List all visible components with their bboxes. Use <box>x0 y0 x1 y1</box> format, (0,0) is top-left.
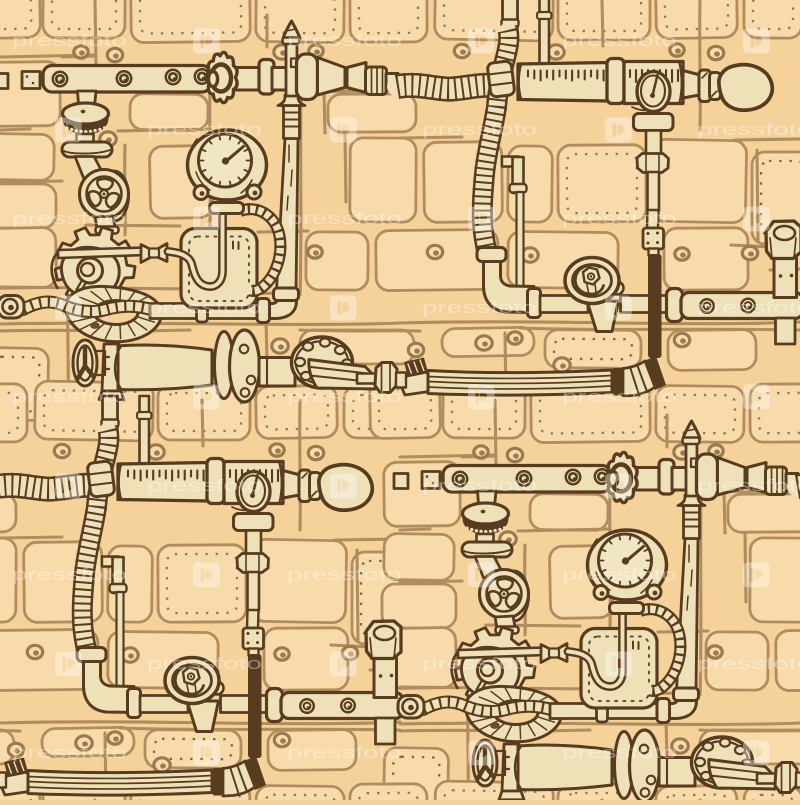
svg-text:pressfoto: pressfoto <box>422 654 537 673</box>
svg-text:pressfoto: pressfoto <box>562 743 677 762</box>
svg-text:pressfoto: pressfoto <box>147 476 262 495</box>
svg-text:pressfoto: pressfoto <box>147 298 262 317</box>
svg-text:pressfoto: pressfoto <box>287 565 402 584</box>
svg-text:pressfoto: pressfoto <box>287 209 402 228</box>
svg-text:pressfoto: pressfoto <box>287 743 402 762</box>
svg-text:pressfoto: pressfoto <box>12 387 127 406</box>
svg-text:pressfoto: pressfoto <box>697 476 800 495</box>
svg-text:pressfoto: pressfoto <box>697 298 800 317</box>
svg-text:pressfoto: pressfoto <box>12 565 127 584</box>
svg-text:pressfoto: pressfoto <box>12 743 127 762</box>
svg-text:pressfoto: pressfoto <box>12 209 127 228</box>
svg-text:pressfoto: pressfoto <box>562 209 677 228</box>
svg-text:pressfoto: pressfoto <box>697 654 800 673</box>
svg-text:pressfoto: pressfoto <box>287 31 402 50</box>
svg-text:pressfoto: pressfoto <box>562 387 677 406</box>
svg-text:pressfoto: pressfoto <box>562 31 677 50</box>
svg-text:pressfoto: pressfoto <box>12 31 127 50</box>
svg-text:pressfoto: pressfoto <box>147 654 262 673</box>
svg-text:pressfoto: pressfoto <box>287 387 402 406</box>
svg-text:pressfoto: pressfoto <box>697 120 800 139</box>
svg-text:pressfoto: pressfoto <box>562 565 677 584</box>
svg-text:pressfoto: pressfoto <box>147 120 262 139</box>
svg-text:pressfoto: pressfoto <box>422 476 537 495</box>
svg-text:pressfoto: pressfoto <box>422 120 537 139</box>
svg-text:pressfoto: pressfoto <box>422 298 537 317</box>
